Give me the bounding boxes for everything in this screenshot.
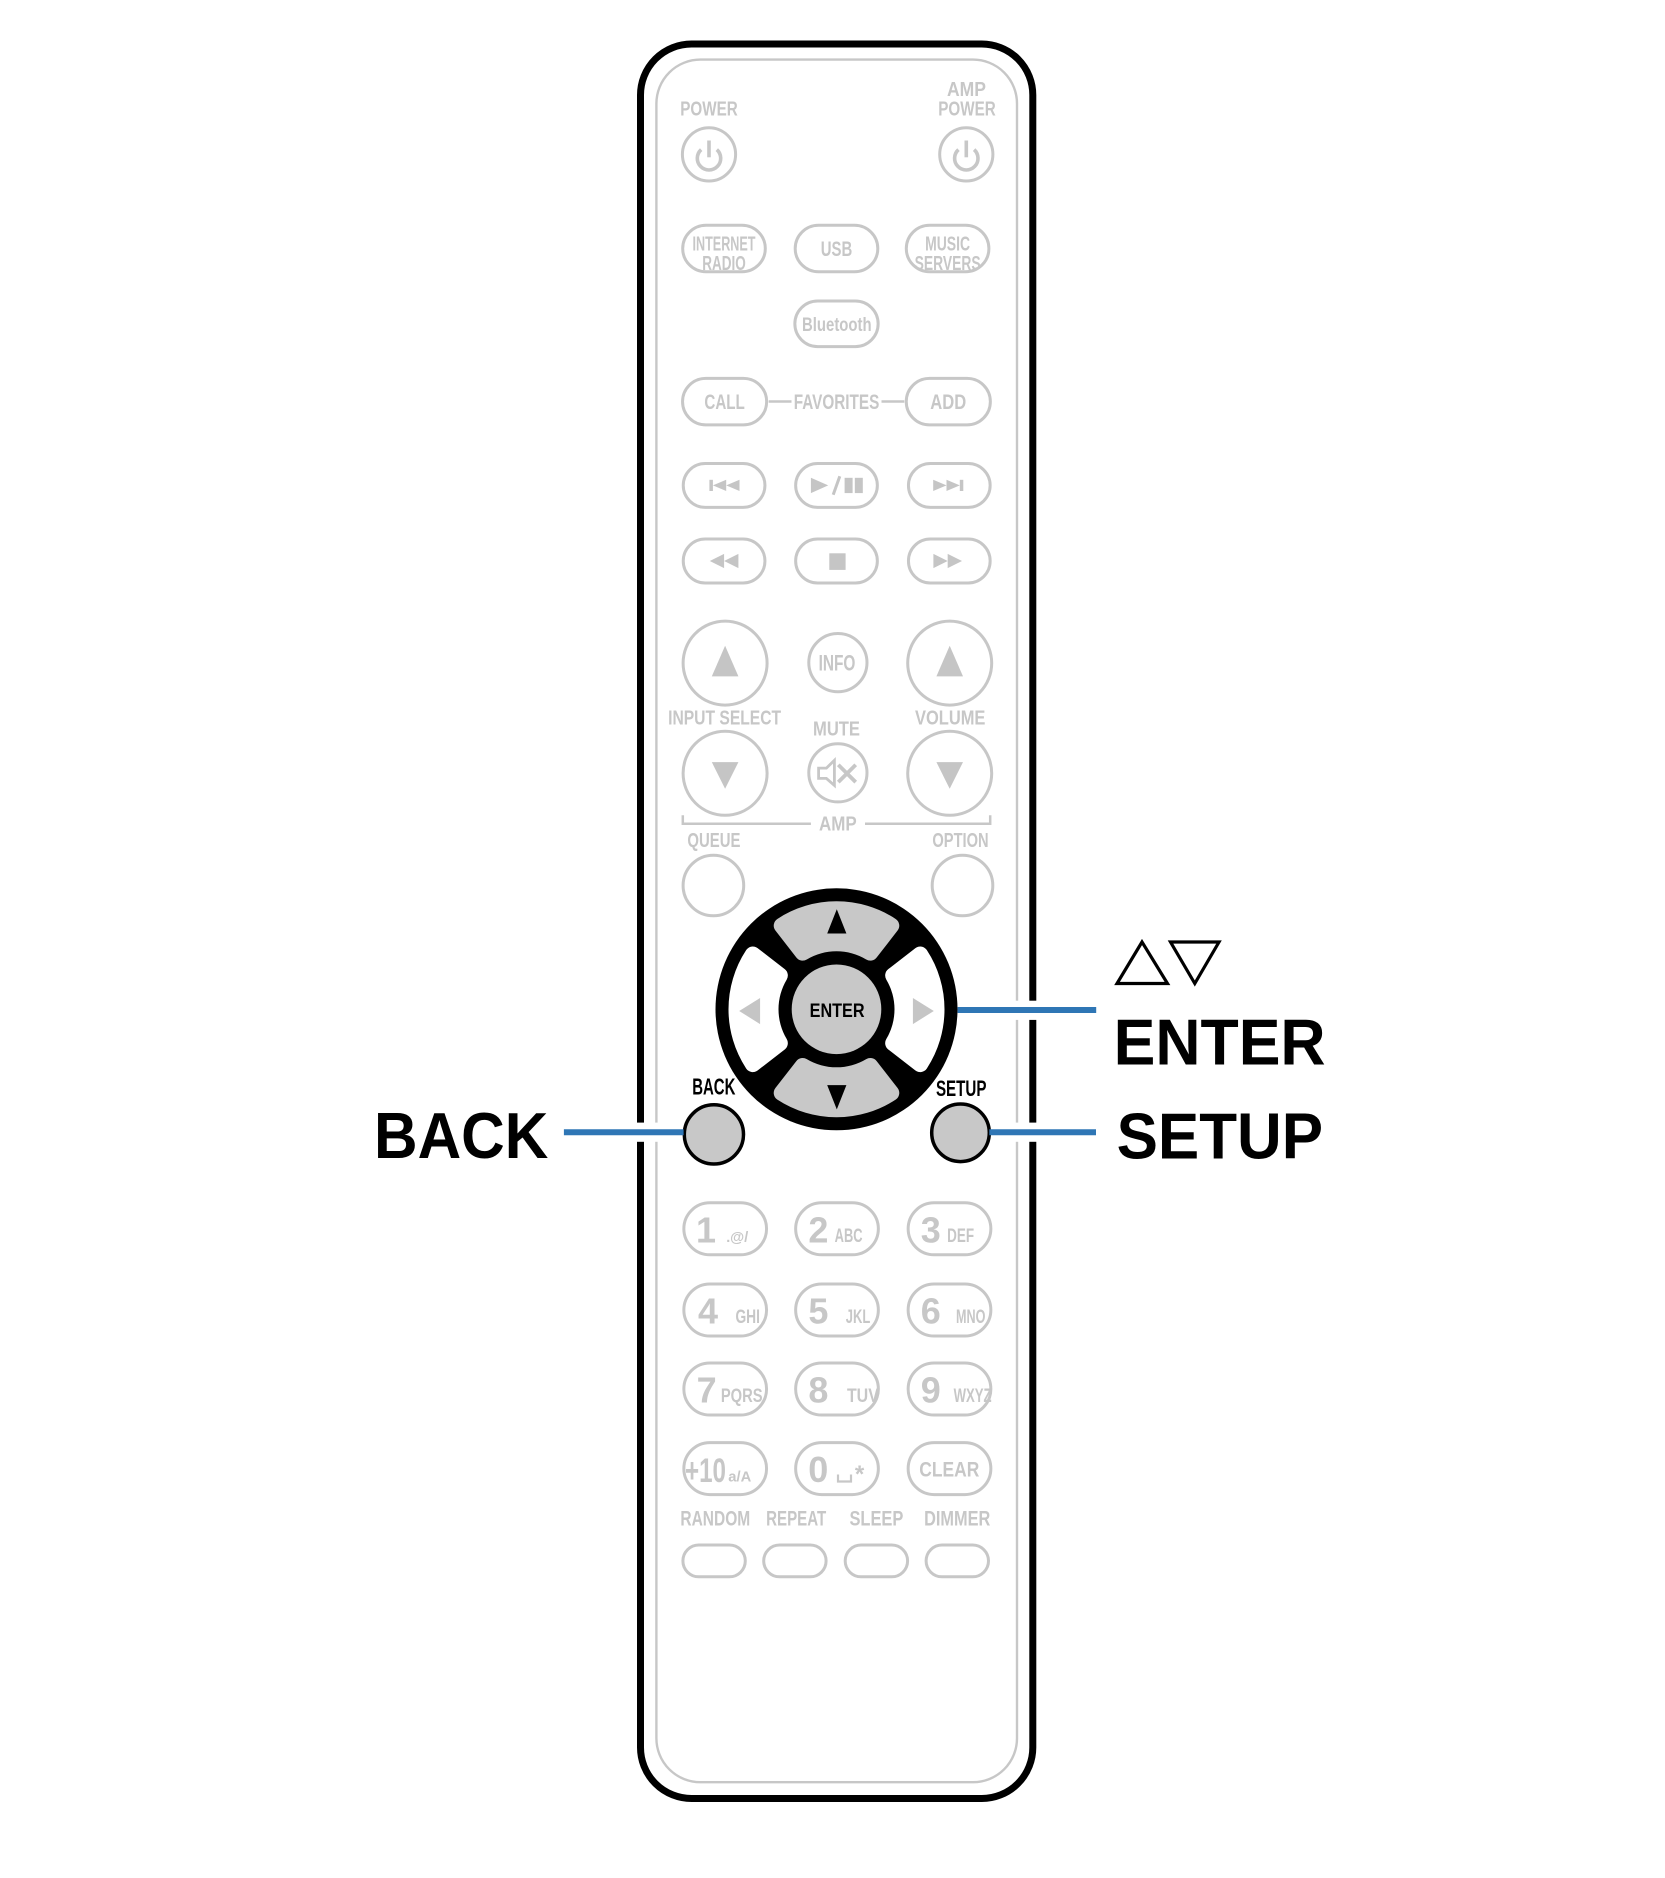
svg-text:OPTION: OPTION bbox=[932, 830, 988, 852]
svg-text:0: 0 bbox=[808, 1449, 828, 1490]
svg-text:AMP: AMP bbox=[819, 814, 857, 836]
svg-text:a/A: a/A bbox=[728, 1469, 751, 1486]
svg-text:USB: USB bbox=[821, 238, 853, 261]
svg-text:SETUP: SETUP bbox=[1117, 1099, 1324, 1172]
svg-text:ADD: ADD bbox=[930, 390, 966, 414]
svg-text:DIMMER: DIMMER bbox=[924, 1506, 991, 1530]
svg-text:6: 6 bbox=[921, 1291, 941, 1332]
svg-text:5: 5 bbox=[808, 1291, 828, 1332]
svg-text:FAVORITES: FAVORITES bbox=[794, 390, 880, 414]
svg-text:INFO: INFO bbox=[819, 650, 856, 675]
svg-text:MNO: MNO bbox=[956, 1306, 985, 1328]
svg-text:SETUP: SETUP bbox=[936, 1076, 987, 1101]
svg-text:PQRS: PQRS bbox=[721, 1385, 763, 1407]
svg-text:INPUT SELECT: INPUT SELECT bbox=[668, 707, 781, 729]
svg-text:MUTE: MUTE bbox=[813, 719, 860, 741]
svg-text:CLEAR: CLEAR bbox=[919, 1458, 979, 1482]
svg-text:TUV: TUV bbox=[847, 1385, 879, 1407]
svg-text:ABC: ABC bbox=[835, 1225, 863, 1247]
svg-text:ENTER: ENTER bbox=[810, 1000, 865, 1022]
svg-text:.@/: .@/ bbox=[726, 1229, 749, 1246]
svg-text:+10: +10 bbox=[685, 1452, 726, 1490]
svg-text:QUEUE: QUEUE bbox=[687, 830, 740, 852]
svg-text:VOLUME: VOLUME bbox=[915, 707, 985, 729]
svg-text:ENTER: ENTER bbox=[1114, 1005, 1326, 1078]
svg-text:JKL: JKL bbox=[846, 1306, 871, 1328]
svg-text:DEF: DEF bbox=[947, 1225, 974, 1247]
svg-text:GHI: GHI bbox=[735, 1306, 760, 1328]
svg-text:SLEEP: SLEEP bbox=[849, 1506, 903, 1530]
svg-text:2: 2 bbox=[808, 1209, 828, 1250]
svg-text:RADIO: RADIO bbox=[702, 252, 746, 275]
svg-text:POWER: POWER bbox=[680, 98, 738, 121]
svg-text:REPEAT: REPEAT bbox=[766, 1506, 826, 1530]
svg-text:BACK: BACK bbox=[374, 1099, 548, 1172]
svg-text:4: 4 bbox=[698, 1291, 718, 1332]
svg-text:POWER: POWER bbox=[938, 98, 996, 121]
svg-text:3: 3 bbox=[921, 1209, 941, 1250]
svg-text:WXYZ: WXYZ bbox=[954, 1385, 992, 1407]
svg-text:1: 1 bbox=[696, 1209, 716, 1250]
svg-text:Bluetooth: Bluetooth bbox=[802, 315, 872, 336]
svg-text:*: * bbox=[855, 1461, 865, 1488]
svg-text:RANDOM: RANDOM bbox=[680, 1506, 750, 1530]
svg-text:9: 9 bbox=[921, 1370, 941, 1411]
svg-text:7: 7 bbox=[697, 1370, 717, 1411]
svg-text:CALL: CALL bbox=[704, 390, 745, 414]
svg-text:BACK: BACK bbox=[692, 1074, 735, 1100]
svg-text:SERVERS: SERVERS bbox=[915, 252, 981, 275]
svg-text:8: 8 bbox=[808, 1370, 828, 1411]
